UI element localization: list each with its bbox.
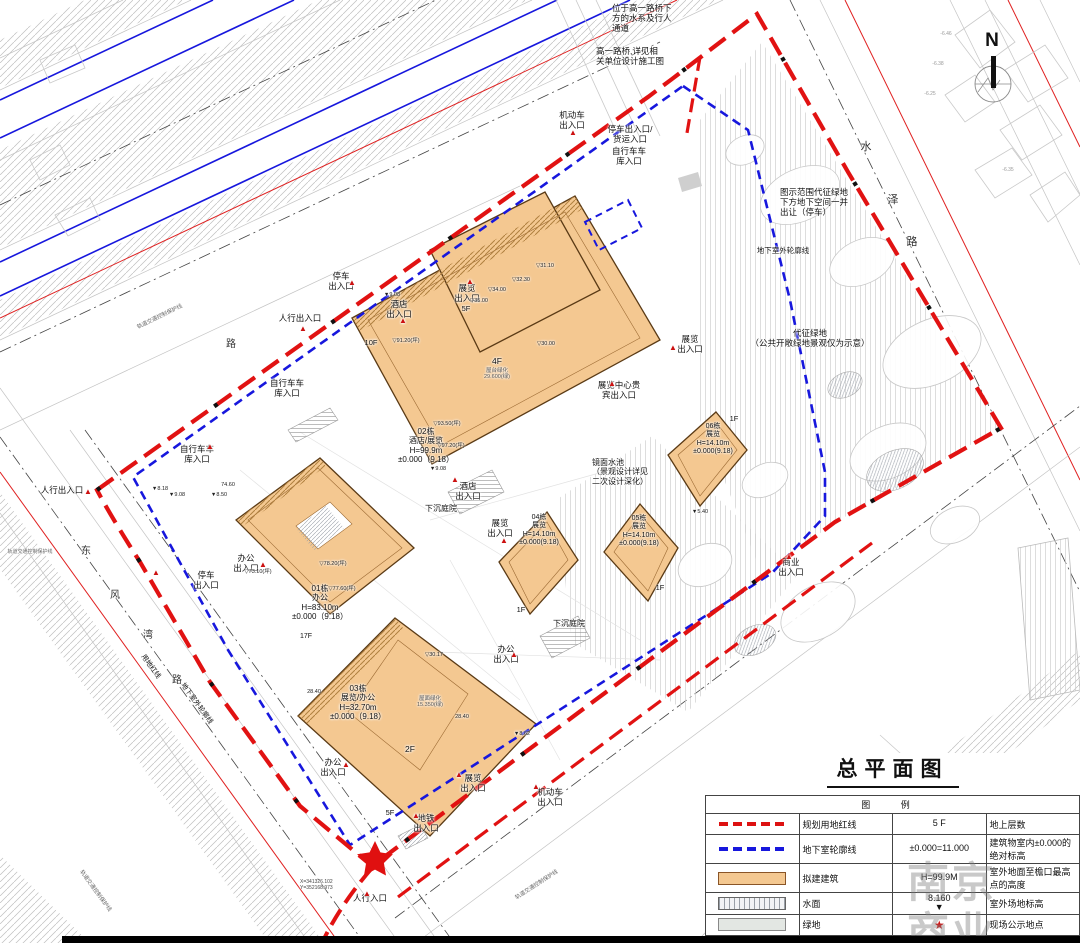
red-dash-symbol (719, 822, 785, 826)
green-symbol (718, 918, 786, 931)
legend-desc: 室外地面至檐口最高点的高度 (986, 864, 1080, 893)
building-03 (298, 618, 536, 836)
legend-header: 图 例 (706, 796, 1080, 814)
bottom-black-bar (62, 936, 1080, 943)
legend-panel: 总平面图 图 例 规划用地红线5 F地上层数地下室轮廓线±0.000=11.00… (705, 753, 1080, 943)
legend-value: 8.160 ▼ (893, 893, 987, 915)
legend-value: 5 F (893, 814, 987, 835)
legend-desc: 地上层数 (986, 814, 1080, 835)
legend-name: 地下室轮廓线 (799, 835, 893, 864)
legend-value: ★ (893, 914, 987, 935)
legend-name: 规划用地红线 (799, 814, 893, 835)
legend-table: 图 例 规划用地红线5 F地上层数地下室轮廓线±0.000=11.000建筑物室… (705, 795, 1080, 943)
blue-dash-symbol (719, 847, 785, 851)
plan-title: 总平面图 (827, 753, 959, 788)
legend-desc: 室外场地标高 (986, 893, 1080, 915)
legend-row-0: 规划用地红线5 F地上层数 (706, 814, 1080, 835)
legend-row-4: 绿地★现场公示地点 (706, 914, 1080, 935)
legend-value: ±0.000=11.000 (893, 835, 987, 864)
legend-desc: 建筑物室内±0.000的绝对标高 (986, 835, 1080, 864)
site-plan: 总平面图 图 例 规划用地红线5 F地上层数地下室轮廓线±0.000=11.00… (0, 0, 1080, 943)
public-notice-star (357, 841, 393, 876)
legend-row-3: 水面8.160 ▼室外场地标高 (706, 893, 1080, 915)
legend-name: 绿地 (799, 914, 893, 935)
legend-name: 拟建建筑 (799, 864, 893, 893)
road-northwest (0, 0, 723, 430)
building-symbol (718, 872, 786, 885)
water-symbol (718, 897, 786, 910)
legend-desc: 现场公示地点 (986, 914, 1080, 935)
north-arrow (975, 56, 1011, 102)
green-area (556, 42, 1000, 712)
legend-row-1: 地下室轮廓线±0.000=11.000建筑物室内±0.000的绝对标高 (706, 835, 1080, 864)
bike-ramp (288, 408, 338, 442)
legend-row-2: 拟建建筑H=99.9M室外地面至檐口最高点的高度 (706, 864, 1080, 893)
legend-value: H=99.9M (893, 864, 987, 893)
legend-name: 水面 (799, 893, 893, 915)
